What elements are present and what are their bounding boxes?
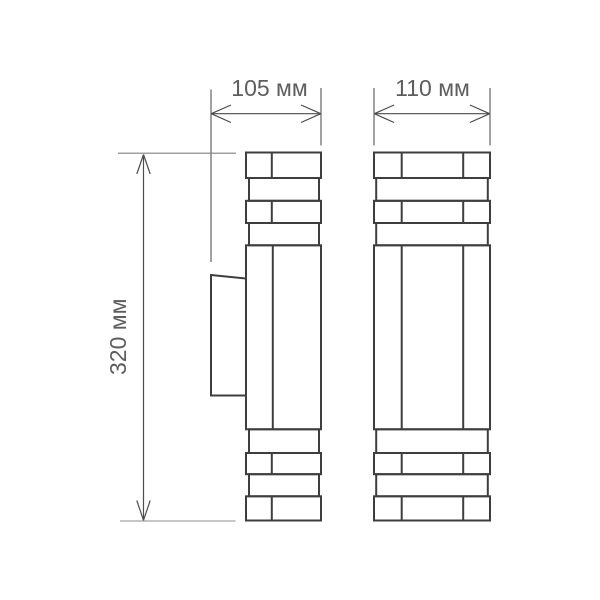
svg-text:320 мм: 320 мм bbox=[105, 299, 131, 375]
svg-text:110 мм: 110 мм bbox=[395, 75, 470, 101]
svg-text:105 мм: 105 мм bbox=[231, 75, 307, 101]
